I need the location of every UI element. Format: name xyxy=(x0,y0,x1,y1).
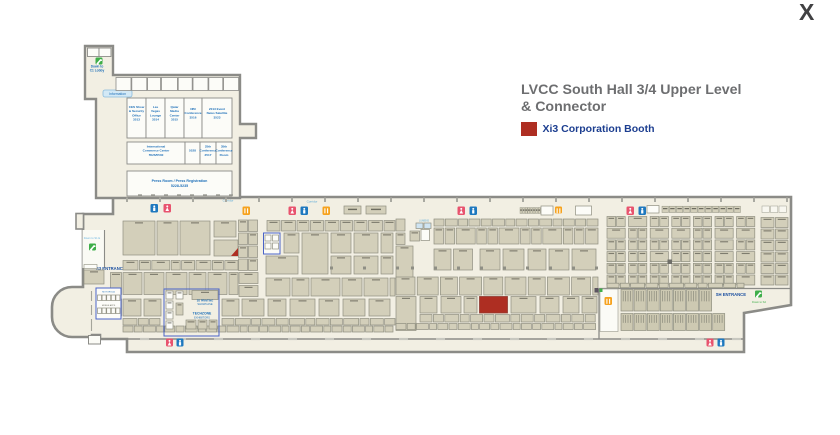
svg-text:3516: 3516 xyxy=(190,115,197,119)
svg-text:LUMENS: LUMENS xyxy=(419,220,429,223)
svg-text:3513: 3513 xyxy=(133,118,140,122)
svg-text:SHOWCASE: SHOWCASE xyxy=(197,302,212,306)
svg-text:Down to S1 E: Down to S1 E xyxy=(84,236,101,240)
svg-text:TECHZONE: TECHZONE xyxy=(193,312,212,316)
svg-text:Press Room / Press Registratio: Press Room / Press Registration xyxy=(152,179,208,183)
svg-text:SH ENTRANCE: SH ENTRANCE xyxy=(716,292,746,297)
svg-text:Information: Information xyxy=(109,92,126,96)
svg-text:3D PRINTING: 3D PRINTING xyxy=(197,299,213,303)
svg-text:MOBILE APPS: MOBILE APPS xyxy=(102,304,116,307)
svg-text:3514: 3514 xyxy=(152,118,159,122)
svg-text:3523: 3523 xyxy=(214,115,221,119)
svg-text:2517: 2517 xyxy=(205,153,212,157)
svg-text:Corridor: Corridor xyxy=(223,199,234,203)
svg-text:5528: 5528 xyxy=(189,149,196,153)
svg-text:5526/5530: 5526/5530 xyxy=(149,153,164,157)
svg-text:Room: Room xyxy=(220,153,229,157)
svg-text:Corridor: Corridor xyxy=(307,200,318,204)
svg-text:3515: 3515 xyxy=(171,118,178,122)
svg-text:C1 Lobby: C1 Lobby xyxy=(90,69,105,73)
svg-text:Down to S2: Down to S2 xyxy=(752,300,766,304)
svg-text:5228-5235: 5228-5235 xyxy=(171,184,188,188)
svg-text:MOTOROLA: MOTOROLA xyxy=(102,291,115,294)
svg-text:EXHIBITORS: EXHIBITORS xyxy=(194,316,210,320)
